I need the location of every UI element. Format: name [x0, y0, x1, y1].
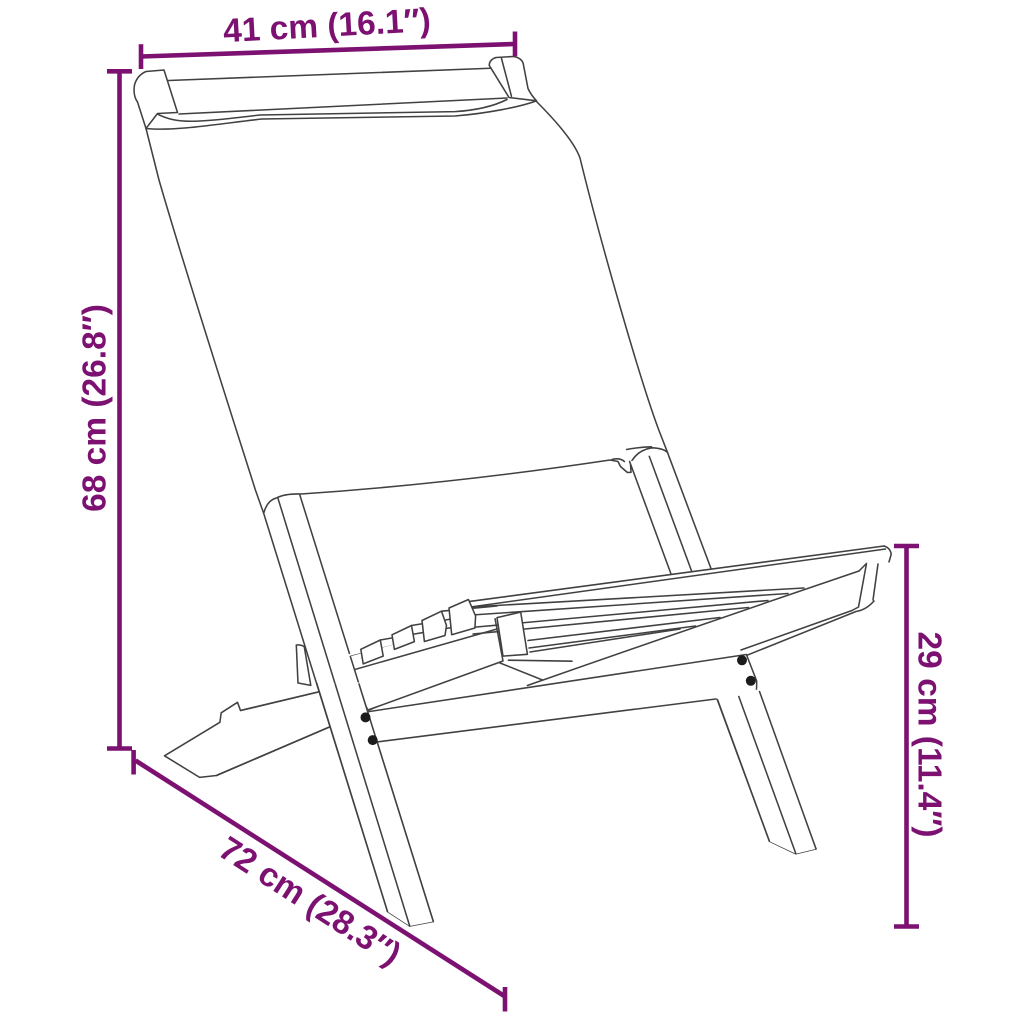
- svg-text:68 cm (26.8″): 68 cm (26.8″): [76, 304, 113, 512]
- svg-text:29 cm (11.4″): 29 cm (11.4″): [911, 631, 948, 837]
